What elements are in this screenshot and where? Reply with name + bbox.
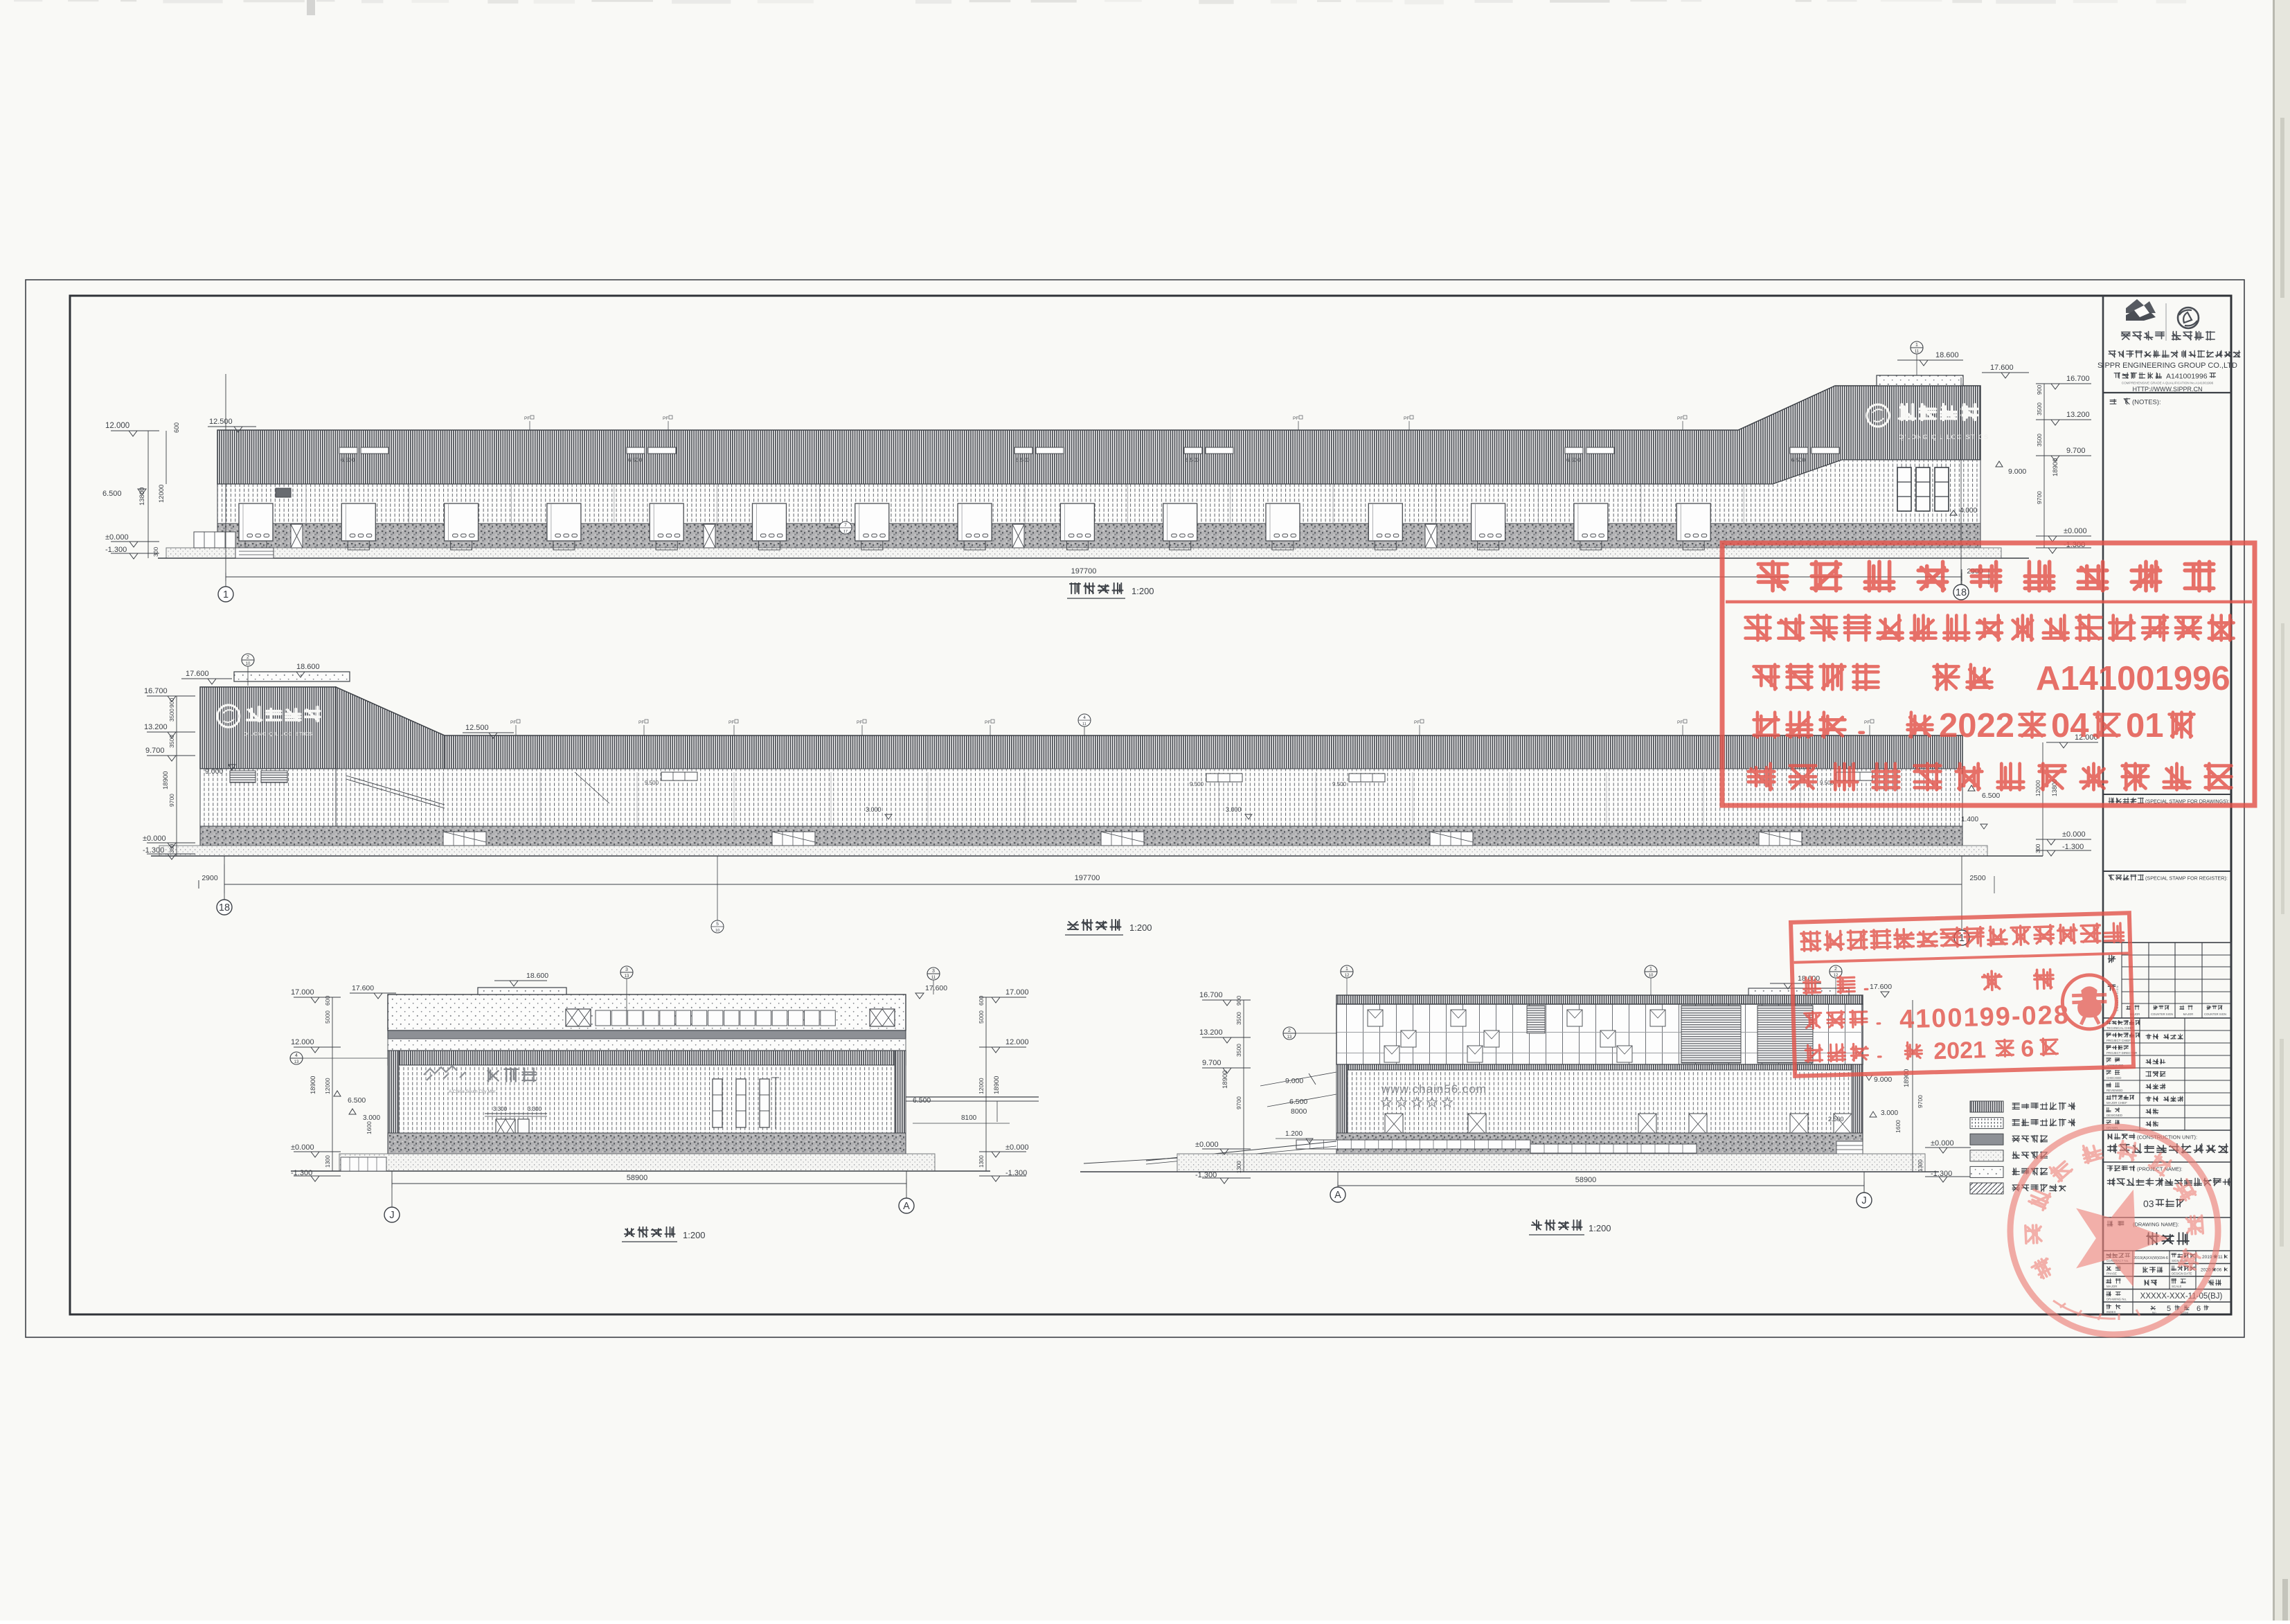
svg-text:2: 2 — [1288, 1028, 1291, 1033]
svg-text:9.700: 9.700 — [2066, 447, 2086, 455]
svg-text:±0.000: ±0.000 — [1005, 1143, 1029, 1152]
svg-text:900: 900 — [168, 698, 175, 708]
svg-text:COMPREHENSIVE GRADE A QUALIFIC: COMPREHENSIVE GRADE A QUALIFICATION No.A… — [2122, 382, 2214, 385]
svg-text:6.500: 6.500 — [628, 457, 643, 463]
svg-text:10: 10 — [246, 662, 251, 666]
svg-text:13.200: 13.200 — [1199, 1028, 1223, 1037]
svg-text:9.700: 9.700 — [1202, 1059, 1222, 1067]
svg-text:(NOTES):: (NOTES): — [2132, 399, 2161, 407]
svg-text:13: 13 — [294, 1060, 299, 1064]
svg-text:±0.000: ±0.000 — [143, 835, 166, 843]
svg-text:10: 10 — [715, 929, 719, 933]
svg-text:J: J — [389, 1210, 394, 1221]
svg-text:300: 300 — [169, 844, 175, 853]
svg-text:±0.000: ±0.000 — [2064, 527, 2087, 535]
svg-text:SCALE: SCALE — [2172, 1285, 2181, 1288]
svg-text:1.200: 1.200 — [1285, 1130, 1303, 1138]
svg-text:600: 600 — [978, 996, 985, 1006]
svg-text:58900: 58900 — [1575, 1176, 1597, 1184]
svg-text:Q'LONG Q'L LOGISTICS: Q'LONG Q'L LOGISTICS — [1899, 434, 1989, 440]
svg-text:9.500: 9.500 — [645, 780, 659, 786]
svg-text:17.600: 17.600 — [925, 984, 947, 992]
svg-text:3.000: 3.000 — [1881, 1109, 1898, 1117]
svg-text:1600: 1600 — [366, 1121, 373, 1134]
svg-text:±0.000: ±0.000 — [291, 1143, 314, 1152]
svg-text:13: 13 — [625, 974, 629, 979]
svg-text:600: 600 — [324, 996, 331, 1006]
svg-text:MAJOR: MAJOR — [2106, 1285, 2117, 1288]
svg-text:3.300: 3.300 — [493, 1106, 508, 1112]
svg-text:9.500: 9.500 — [1190, 781, 1204, 787]
svg-text:18: 18 — [1956, 587, 1967, 598]
svg-text:DESIGN DATE: DESIGN DATE — [2172, 1272, 2192, 1276]
svg-text:17.000: 17.000 — [291, 988, 314, 997]
svg-text:9700: 9700 — [1235, 1096, 1242, 1109]
svg-text:17.600: 17.600 — [1990, 364, 2014, 372]
svg-text:1:200: 1:200 — [1129, 922, 1152, 933]
svg-text:1.400: 1.400 — [1961, 816, 1978, 823]
svg-text:9.000: 9.000 — [1874, 1076, 1892, 1084]
svg-text:6.500: 6.500 — [913, 1096, 931, 1105]
svg-text:6.500: 6.500 — [348, 1096, 366, 1105]
svg-text:PF: PF — [1404, 416, 1409, 421]
svg-text:5: 5 — [716, 922, 719, 927]
svg-text:(SPECIAL STAMP FOR REGISTER):: (SPECIAL STAMP FOR REGISTER): — [2145, 875, 2228, 882]
svg-text:4.000: 4.000 — [1960, 507, 1977, 515]
svg-text:9700: 9700 — [1917, 1095, 1924, 1108]
svg-text:18900: 18900 — [162, 771, 170, 789]
svg-text:PF: PF — [524, 416, 530, 421]
svg-text:5: 5 — [2167, 1305, 2171, 1313]
svg-text:17.000: 17.000 — [1005, 988, 1029, 997]
svg-text:MAJOR: MAJOR — [2183, 1012, 2194, 1016]
svg-text:6.500: 6.500 — [1566, 457, 1581, 463]
svg-text:17: 17 — [843, 530, 848, 534]
svg-text:REVIEWED: REVIEWED — [2106, 1089, 2122, 1092]
svg-text:6.500: 6.500 — [1186, 457, 1200, 463]
svg-text:13: 13 — [1287, 1035, 1292, 1039]
svg-text:11: 11 — [1915, 350, 1920, 354]
svg-text:12.500: 12.500 — [209, 418, 233, 426]
svg-text:18.600: 18.600 — [1935, 351, 1959, 359]
svg-text:06: 06 — [2217, 1268, 2222, 1273]
svg-text:10: 10 — [1649, 974, 1654, 978]
svg-text:PF: PF — [1677, 416, 1683, 421]
svg-text:18.600: 18.600 — [296, 663, 320, 671]
svg-text:2019: 2019 — [2202, 1255, 2212, 1260]
svg-text:2: 2 — [1834, 967, 1837, 972]
svg-text:±0.000: ±0.000 — [105, 533, 129, 542]
svg-text:COUNTER SIGN: COUNTER SIGN — [2204, 1012, 2226, 1016]
svg-text:COUNTER SIGN: COUNTER SIGN — [2151, 1012, 2173, 1016]
svg-text:2: 2 — [247, 655, 249, 660]
svg-text:9.000: 9.000 — [205, 767, 223, 776]
svg-text:18: 18 — [219, 902, 230, 913]
svg-text:9700: 9700 — [168, 794, 175, 807]
svg-text:No.: No. — [2152, 1311, 2157, 1314]
svg-text:www.chain56.com: www.chain56.com — [1381, 1082, 1487, 1096]
svg-text:04: 04 — [2051, 707, 2089, 744]
svg-text:3.000: 3.000 — [866, 806, 882, 813]
svg-text:PF: PF — [1293, 416, 1298, 421]
svg-text:A China South City Mbr.: A China South City Mbr. — [449, 1089, 497, 1094]
svg-text:CHECKED: CHECKED — [2106, 1076, 2121, 1080]
svg-text:6.500: 6.500 — [341, 457, 355, 463]
svg-text:1300: 1300 — [325, 1155, 331, 1168]
svg-text:18900: 18900 — [310, 1076, 317, 1094]
svg-text:PF: PF — [638, 720, 644, 725]
svg-text:6.500: 6.500 — [102, 490, 122, 498]
svg-text:-1.300: -1.300 — [105, 546, 127, 554]
svg-text:1: 1 — [1345, 967, 1348, 972]
svg-text:18900: 18900 — [993, 1076, 1001, 1094]
svg-text:13.200: 13.200 — [144, 723, 168, 731]
svg-text:PF: PF — [1864, 720, 1870, 725]
svg-text:2900: 2900 — [202, 874, 218, 882]
svg-text:A141001996: A141001996 — [2036, 660, 2230, 697]
svg-text:11: 11 — [2218, 1255, 2223, 1260]
svg-text:4: 4 — [1083, 715, 1086, 720]
svg-text:-1.300: -1.300 — [2062, 843, 2084, 851]
svg-text:4: 4 — [295, 1053, 298, 1058]
svg-text:16.700: 16.700 — [2066, 375, 2090, 383]
svg-text:197700: 197700 — [1075, 874, 1100, 882]
svg-text:4100199-028: 4100199-028 — [1899, 1001, 2070, 1035]
svg-text:13.200: 13.200 — [2066, 411, 2090, 419]
svg-text:PF: PF — [1414, 720, 1420, 725]
svg-text:12.000: 12.000 — [105, 422, 129, 430]
svg-text:3.000: 3.000 — [1226, 806, 1242, 813]
svg-text:17.600: 17.600 — [1870, 983, 1892, 991]
svg-text:3: 3 — [625, 967, 628, 972]
svg-text:9.700: 9.700 — [145, 747, 165, 755]
svg-text:8000: 8000 — [1291, 1107, 1307, 1116]
svg-text:Q'LONG Q'L LOGISTICS: Q'LONG Q'L LOGISTICS — [244, 731, 313, 737]
svg-text:PF: PF — [510, 720, 516, 725]
svg-text:DRAWING No.: DRAWING No. — [2106, 1298, 2127, 1301]
svg-text:PF: PF — [1677, 720, 1683, 725]
svg-text:900: 900 — [1235, 996, 1242, 1006]
svg-text:1:200: 1:200 — [1131, 586, 1154, 596]
svg-text:MAJOR CHIEF: MAJOR CHIEF — [2106, 1101, 2127, 1105]
svg-text:3500: 3500 — [1235, 1012, 1242, 1025]
svg-text:PF: PF — [728, 720, 734, 725]
svg-text:±0.000: ±0.000 — [1931, 1139, 1954, 1148]
svg-text:HTTP://WWW.SIPPR.CN: HTTP://WWW.SIPPR.CN — [2133, 386, 2203, 393]
svg-text:6: 6 — [2197, 1305, 2201, 1313]
svg-text:PF: PF — [857, 720, 862, 725]
svg-text:6.500: 6.500 — [1016, 457, 1030, 463]
svg-text:2500: 2500 — [1969, 874, 1986, 882]
svg-text:300: 300 — [152, 547, 159, 557]
svg-text:2019(A)XX(W)034-6: 2019(A)XX(W)034-6 — [2134, 1256, 2168, 1260]
svg-text:3500: 3500 — [2036, 434, 2043, 447]
svg-text:6.500: 6.500 — [1791, 457, 1806, 463]
svg-text:3500: 3500 — [2036, 402, 2043, 416]
svg-text:3500: 3500 — [168, 735, 175, 748]
svg-text:900: 900 — [2036, 385, 2043, 395]
svg-text:03: 03 — [2143, 1198, 2154, 1209]
svg-text:12: 12 — [1345, 974, 1350, 978]
svg-text:1300: 1300 — [1917, 1159, 1924, 1172]
svg-text:SIPPR ENGINEERING GROUP CO.,LT: SIPPR ENGINEERING GROUP CO.,LTD — [2097, 362, 2237, 370]
svg-text:9.500: 9.500 — [1332, 781, 1347, 787]
svg-text:7: 7 — [844, 523, 847, 528]
svg-text:17.600: 17.600 — [352, 984, 374, 992]
svg-text:TECHNICAL CHIEF: TECHNICAL CHIEF — [2106, 1026, 2134, 1030]
svg-text:8100: 8100 — [961, 1114, 977, 1122]
svg-text:PF: PF — [663, 416, 668, 421]
svg-text:A: A — [903, 1201, 910, 1212]
svg-text:3.300: 3.300 — [528, 1106, 542, 1112]
svg-text:2022: 2022 — [1939, 707, 2014, 744]
svg-text:XXXXX-XXX-11-05(BJ): XXXXX-XXX-11-05(BJ) — [2140, 1292, 2223, 1301]
svg-text:PF: PF — [985, 720, 990, 725]
svg-text:2.500: 2.500 — [1828, 1116, 1844, 1123]
svg-text:A: A — [1334, 1190, 1341, 1201]
svg-text:±0.000: ±0.000 — [2062, 830, 2086, 839]
svg-text:1:200: 1:200 — [1589, 1223, 1611, 1233]
svg-text:PROJECT CHIEF: PROJECT CHIEF — [2106, 1039, 2131, 1042]
svg-text:16.700: 16.700 — [1199, 991, 1223, 999]
svg-text:3: 3 — [932, 969, 935, 974]
svg-text:1: 1 — [1915, 343, 1918, 348]
svg-text:3500: 3500 — [1235, 1044, 1242, 1057]
svg-text:11: 11 — [1082, 722, 1086, 726]
svg-text:18900: 18900 — [1222, 1071, 1229, 1089]
svg-text:J: J — [1861, 1195, 1866, 1206]
svg-text:INDEX: INDEX — [2106, 1310, 2115, 1314]
svg-text:300: 300 — [2035, 844, 2041, 853]
svg-text:12.000: 12.000 — [291, 1038, 314, 1046]
svg-text:1:200: 1:200 — [683, 1230, 706, 1240]
svg-text:PHASE: PHASE — [2106, 1272, 2117, 1276]
svg-text:16.700: 16.700 — [144, 687, 168, 695]
svg-text:(PROJECT NAME):: (PROJECT NAME): — [2137, 1166, 2183, 1172]
svg-text:A141001996: A141001996 — [2166, 373, 2208, 381]
svg-text:1: 1 — [223, 589, 229, 600]
svg-text:18.600: 18.600 — [526, 972, 548, 980]
svg-text:18900: 18900 — [2052, 458, 2059, 476]
svg-text:600: 600 — [173, 422, 180, 433]
svg-text:1600: 1600 — [1895, 1120, 1902, 1133]
svg-text:11: 11 — [931, 976, 936, 980]
svg-text:58900: 58900 — [627, 1174, 648, 1182]
svg-text:12000: 12000 — [158, 485, 166, 503]
svg-text:17.600: 17.600 — [186, 670, 209, 678]
svg-text:01: 01 — [2126, 707, 2164, 744]
svg-text:12.500: 12.500 — [465, 724, 489, 732]
svg-text:-1.300: -1.300 — [143, 846, 164, 855]
svg-text:12000: 12000 — [978, 1078, 985, 1094]
svg-text:5000: 5000 — [978, 1010, 985, 1024]
svg-text:3.000: 3.000 — [363, 1114, 380, 1122]
svg-text:6.500: 6.500 — [1289, 1098, 1307, 1106]
svg-text:12.000: 12.000 — [1005, 1038, 1029, 1046]
svg-text:6: 6 — [2021, 1035, 2034, 1062]
svg-text:1: 1 — [1959, 933, 1965, 944]
svg-text:9.000: 9.000 — [2008, 467, 2026, 476]
svg-text:(DRAWING NAME):: (DRAWING NAME): — [2133, 1222, 2179, 1228]
svg-text:3500: 3500 — [168, 708, 175, 722]
svg-text:1: 1 — [1649, 967, 1652, 972]
svg-text:2021: 2021 — [1933, 1037, 1987, 1064]
svg-text:±0.000: ±0.000 — [1195, 1141, 1219, 1149]
svg-text:1300: 1300 — [1236, 1161, 1242, 1173]
svg-text:9700: 9700 — [2036, 491, 2043, 504]
svg-text:197700: 197700 — [1071, 567, 1097, 575]
svg-text:1300: 1300 — [978, 1155, 985, 1168]
svg-text:5000: 5000 — [324, 1010, 331, 1024]
svg-text:12000: 12000 — [324, 1078, 331, 1094]
svg-text:6.500: 6.500 — [1982, 792, 2000, 800]
svg-text:DESIGNED: DESIGNED — [2106, 1114, 2122, 1117]
